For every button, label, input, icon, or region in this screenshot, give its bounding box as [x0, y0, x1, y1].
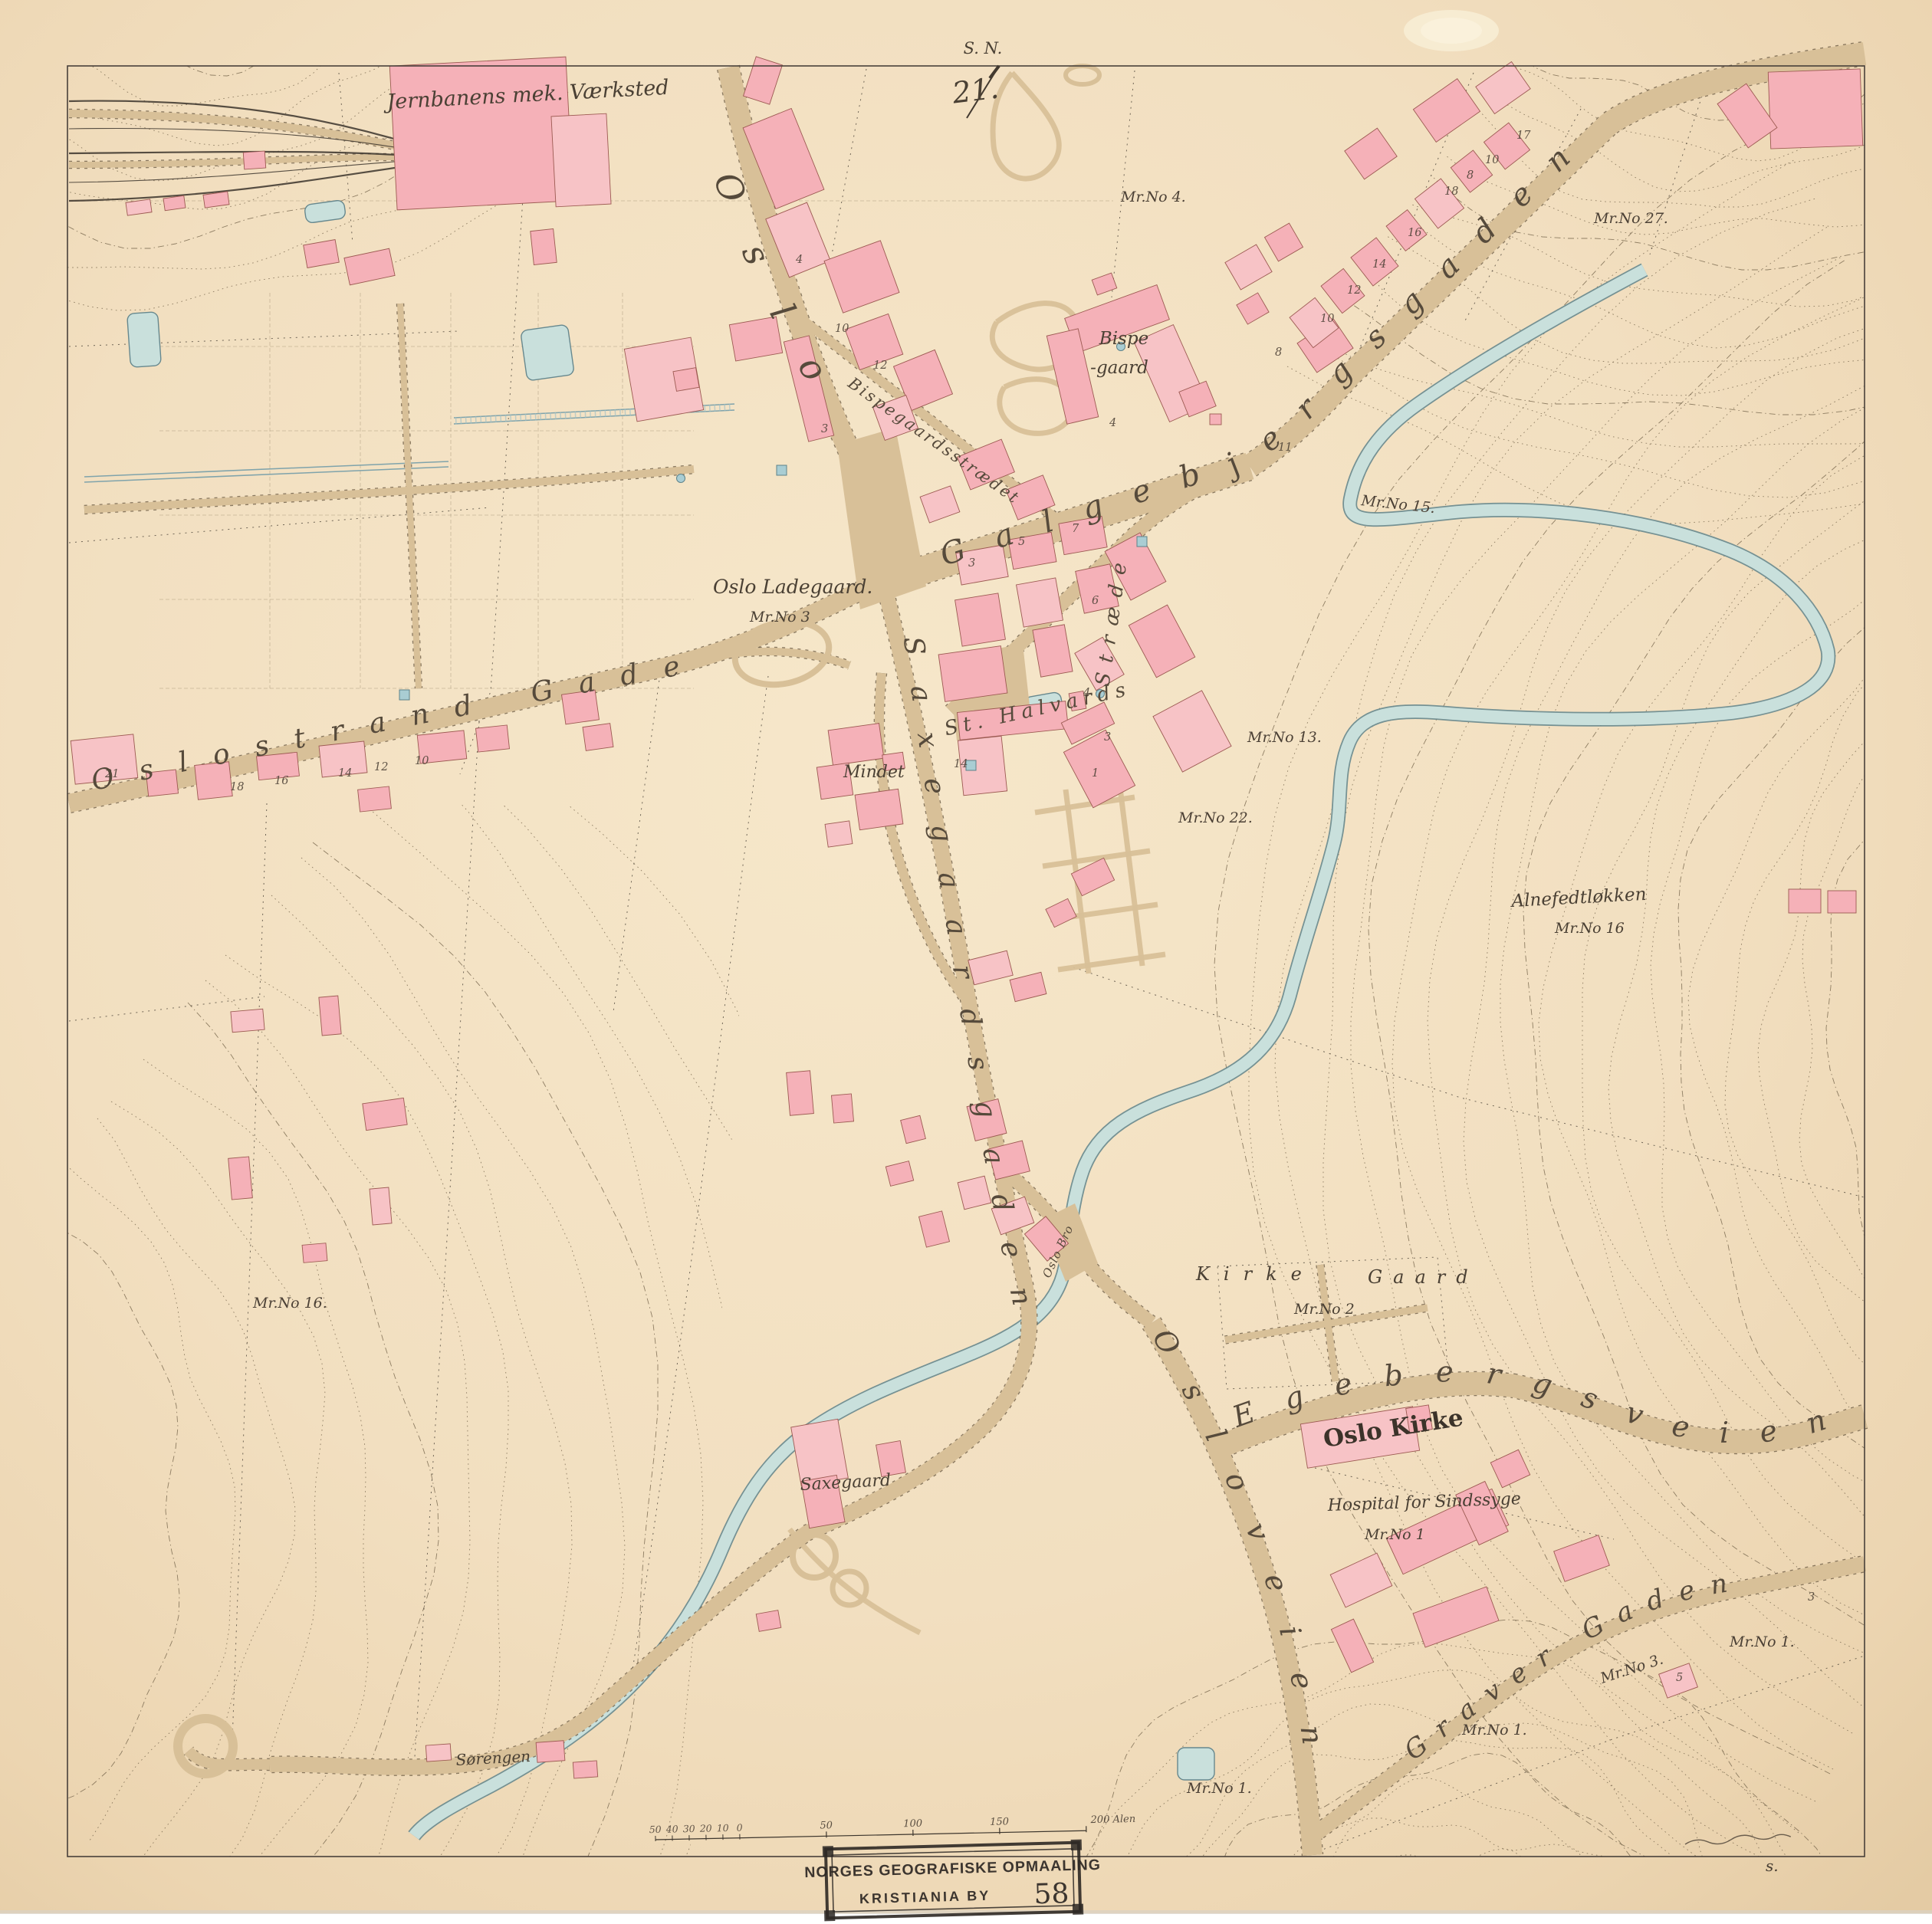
pond — [521, 324, 575, 381]
scale-tick-label: 100 — [903, 1818, 922, 1830]
scale-tick-label: 10 — [717, 1822, 729, 1834]
scale-end-label: 200 Alen — [1089, 1814, 1135, 1826]
plot-number: 12 — [374, 761, 388, 773]
building — [825, 821, 853, 847]
plot-number: 10 — [415, 755, 429, 767]
plot-number: 14 — [954, 758, 968, 770]
label-mindet: Mindet — [843, 763, 905, 782]
plot-number: 10 — [835, 323, 849, 335]
plot-number: 6 — [1092, 595, 1099, 607]
plot-number: 8 — [1275, 346, 1282, 359]
building — [756, 1610, 781, 1632]
pond — [127, 312, 162, 368]
plot-number: 7 — [1072, 523, 1079, 535]
plot-number: 11 — [1278, 442, 1292, 454]
building — [389, 57, 573, 210]
building — [938, 646, 1007, 702]
building — [1017, 578, 1063, 627]
label-kirkegaard-kirke: Kirke — [1195, 1263, 1316, 1285]
label-bispegaard-2: -gaard — [1090, 358, 1148, 378]
label-alnefedtlokken-matr: Mr.No 16 — [1554, 920, 1625, 937]
scale-tick-label: 50 — [649, 1824, 662, 1835]
building — [1828, 891, 1856, 913]
plot-number: 5 — [1018, 536, 1025, 548]
well-dot — [677, 474, 685, 483]
matrikkel-label: Mr.No 1. — [1461, 1722, 1527, 1738]
plot-number: 8 — [1467, 169, 1474, 182]
building — [228, 1157, 253, 1200]
building — [551, 113, 611, 207]
sheet-number: 21. — [950, 71, 1001, 110]
scale-tick-label: 0 — [737, 1822, 743, 1834]
building — [673, 368, 699, 392]
map-sheet-scan: S. N. 21. Jernbanens mek. Værksted Bispe… — [0, 0, 1932, 1924]
plot-number: 14 — [338, 767, 352, 780]
label-oslo-ladegaard: Oslo Ladegaard. — [713, 576, 872, 598]
plot-number: 14 — [1372, 258, 1386, 271]
paper-stain-core — [1421, 18, 1482, 44]
stamp-corner-ornament — [1071, 1840, 1082, 1850]
label-sorengen: Sørengen — [455, 1747, 531, 1769]
building — [231, 1009, 264, 1033]
building — [426, 1744, 451, 1761]
building — [243, 151, 265, 169]
label-kirkegaard-gaard: Gaard — [1368, 1266, 1479, 1288]
scale-tick-label: 150 — [990, 1816, 1009, 1828]
plot-number: 3 — [1104, 731, 1111, 744]
plot-number: 12 — [1347, 284, 1361, 297]
building — [955, 593, 1006, 646]
matrikkel-label: Mr.No 16. — [252, 1295, 327, 1312]
label-bispegaard-1: Bispe — [1099, 329, 1148, 349]
building — [1789, 889, 1821, 913]
plot-number: 4 — [1109, 417, 1116, 429]
scale-tick-label: 50 — [820, 1820, 833, 1831]
plot-number: 21 — [104, 768, 119, 780]
plot-number: 4 — [1083, 687, 1090, 699]
matrikkel-label: Mr.No 1. — [1729, 1633, 1795, 1650]
building — [831, 1094, 853, 1123]
building — [358, 786, 392, 812]
plot-number: 16 — [274, 775, 288, 787]
stamp-number: 58 — [1033, 1878, 1069, 1910]
label-hospital-matr: Mr.No 1 — [1364, 1526, 1425, 1543]
building — [475, 725, 509, 752]
plot-number: 18 — [230, 781, 244, 793]
matrikkel-label: Mr.No 4. — [1120, 189, 1186, 205]
corner-letter: s. — [1766, 1857, 1779, 1875]
scale-tick-label: 40 — [665, 1823, 678, 1834]
building — [319, 996, 341, 1036]
matrikkel-label: Mr.No 13. — [1247, 729, 1322, 746]
well-square — [399, 690, 409, 700]
plot-number: 3 — [821, 423, 828, 435]
historic-map-canvas: S. N. 21. Jernbanens mek. Værksted Bispe… — [0, 0, 1932, 1924]
plot-number: 12 — [873, 360, 887, 372]
plot-number: 3 — [968, 557, 975, 570]
plot-number: 17 — [1516, 130, 1531, 142]
building — [531, 229, 557, 265]
building — [583, 724, 613, 751]
stamp-corner-ornament — [1073, 1904, 1083, 1915]
plot-number: 16 — [1408, 227, 1421, 239]
matrikkel-label: Mr.No 22. — [1178, 809, 1253, 826]
well-square — [1137, 537, 1147, 547]
scale-tick-label: 30 — [683, 1823, 695, 1834]
building — [370, 1187, 392, 1225]
plot-number: 3 — [1808, 1591, 1815, 1604]
label-kirkegaard-matr: Mr.No 2 — [1293, 1301, 1355, 1318]
plot-number: 10 — [1320, 313, 1334, 325]
building — [1210, 414, 1221, 425]
building — [1768, 69, 1862, 149]
pond — [1178, 1748, 1214, 1780]
plot-number: 18 — [1444, 186, 1458, 198]
building — [787, 1071, 814, 1115]
stamp-corner-ornament — [824, 1910, 835, 1921]
scale-tick-label: 20 — [699, 1822, 712, 1834]
stamp-corner-ornament — [823, 1846, 833, 1857]
building — [855, 789, 903, 829]
building — [302, 1243, 327, 1263]
building — [536, 1741, 565, 1762]
north-label: S. N. — [964, 39, 1003, 57]
matrikkel-label: Mr.No 1. — [1186, 1780, 1252, 1797]
building — [163, 195, 186, 211]
plot-number: 4 — [795, 254, 803, 266]
building — [828, 724, 884, 766]
plot-number: 10 — [1485, 154, 1499, 166]
building — [573, 1761, 597, 1778]
well-square — [777, 465, 787, 475]
plot-number: 5 — [1676, 1672, 1683, 1684]
matrikkel-label: Mr.No 27. — [1593, 210, 1668, 227]
building — [363, 1098, 407, 1130]
plot-number: 1 — [1092, 767, 1099, 780]
label-oslo-ladegaard-matr: Mr.No 3 — [749, 609, 810, 625]
